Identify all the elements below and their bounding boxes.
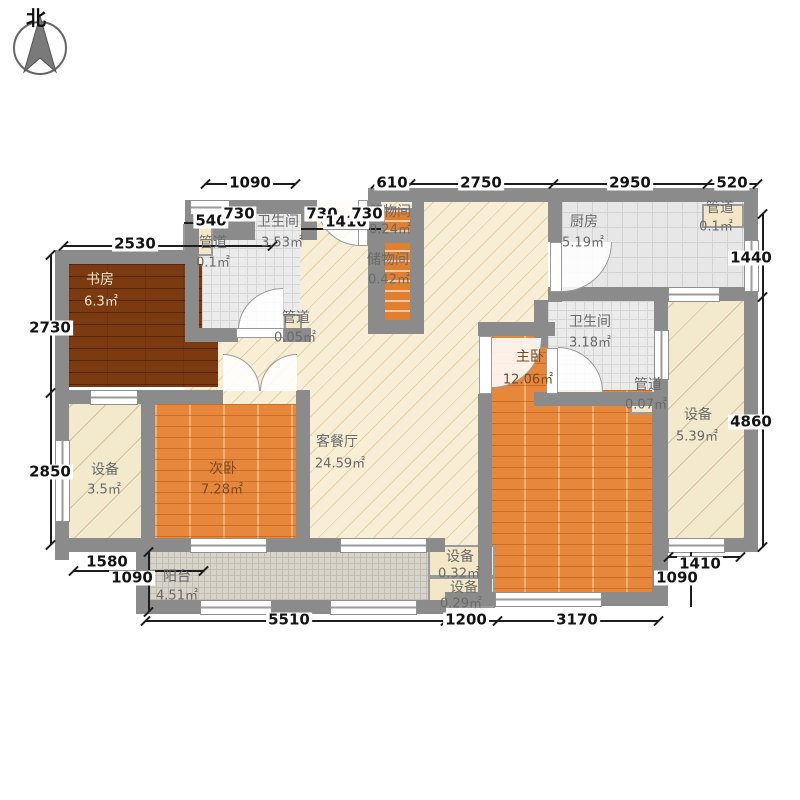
- balcony-name: 阳台: [163, 570, 191, 584]
- equip-bottom2-area: 0.29㎡: [440, 598, 482, 611]
- dim-bottom-5510: 5510: [266, 613, 312, 628]
- storage-lower-name: 储物间: [367, 253, 409, 267]
- equip-bottom1-area: 0.32㎡: [438, 568, 480, 581]
- dim-left-2850: 2850: [27, 465, 73, 480]
- north-label: 北: [26, 2, 46, 31]
- kitchen-area: 5.19㎡: [562, 237, 604, 250]
- dim-right-4860: 4860: [728, 415, 774, 430]
- dim-top-2750: 2750: [458, 176, 504, 191]
- dim-bottom-1200: 1200: [443, 613, 489, 628]
- equip-bottom2-name: 设备: [450, 581, 478, 595]
- dim-left-1580: 1580: [84, 555, 130, 570]
- window-master-bottom: [495, 592, 602, 607]
- equip-left-area: 3.5㎡: [87, 484, 121, 497]
- duct-top-left-area: 0.1㎡: [196, 257, 230, 270]
- living-name: 客餐厅: [316, 435, 358, 449]
- duct-top-right-area: 0.1㎡: [699, 221, 733, 234]
- dim-left-1090: 1090: [109, 571, 155, 586]
- wall-storage-right: [412, 202, 424, 330]
- dim-in-730c: 730: [349, 207, 384, 222]
- bath-top-area: 3.53㎡: [261, 237, 303, 250]
- equip-bottom1-name: 设备: [446, 550, 474, 564]
- duct-top-left-name: 管道: [199, 236, 227, 250]
- dim-left-2530: 2530: [112, 237, 158, 252]
- wall-bed2-left: [141, 404, 155, 552]
- study-name: 书房: [86, 273, 114, 287]
- duct-right-name: 管道: [634, 378, 662, 392]
- study-area: 6.3㎡: [84, 296, 118, 309]
- dim-left-2730: 2730: [27, 321, 73, 336]
- bed2-area: 7.28㎡: [201, 484, 243, 497]
- duct-top-right-name: 管道: [706, 201, 734, 215]
- dim-top-610: 610: [374, 176, 409, 191]
- floor-plan-canvas: 北: [0, 0, 800, 800]
- bath-top-name: 卫生间: [257, 215, 299, 229]
- dim-top-2950: 2950: [607, 176, 653, 191]
- equip-right-name: 设备: [684, 408, 712, 422]
- wall-hall-bottom-a: [55, 390, 223, 404]
- bath-right-area: 3.18㎡: [569, 337, 611, 350]
- window-equip-left: [55, 440, 70, 522]
- equip-left-name: 设备: [91, 463, 119, 477]
- dim-right-1090: 1090: [654, 571, 700, 586]
- wall-kitchen-left-a: [548, 202, 562, 242]
- window-balcony-top-a: [190, 538, 267, 553]
- dim-right-1440: 1440: [728, 251, 774, 266]
- window-balcony-bottom-a: [200, 600, 272, 615]
- window-bathR-right: [654, 330, 669, 380]
- dim-bottom-3170: 3170: [554, 613, 600, 628]
- dim-top-1090: 1090: [227, 176, 273, 191]
- kitchen-name: 厨房: [570, 215, 598, 229]
- window-balcony-bottom-b: [330, 600, 417, 615]
- window-hall-wall: [90, 390, 138, 405]
- dim-in-730a: 730: [221, 207, 256, 222]
- wall-storage-bottom: [368, 322, 424, 334]
- storage-lower-area: 0.42㎡: [368, 274, 410, 287]
- window-balcony-top-b: [340, 538, 427, 553]
- duct-hall-name: 管道: [282, 311, 310, 325]
- equip-right-area: 5.39㎡: [676, 431, 718, 444]
- master-name: 主卧: [516, 350, 544, 364]
- window-equipR-bottom: [668, 538, 725, 553]
- master-area: 12.06㎡: [503, 374, 553, 387]
- master-door-leaf: [479, 336, 492, 394]
- dim-line-2530: [63, 245, 272, 247]
- wall-master-left-b: [478, 394, 492, 592]
- storage-upper-area: 0.24㎡: [369, 224, 411, 237]
- wall-bathroom-top-left: [185, 214, 199, 340]
- dim-line-left: [50, 255, 52, 545]
- living-area: 24.59㎡: [315, 458, 365, 471]
- bath-right-name: 卫生间: [569, 315, 611, 329]
- dim-top-520: 520: [714, 176, 749, 191]
- duct-hall-area: 0.05㎡: [274, 332, 316, 345]
- dim-line-top-b: [375, 183, 757, 185]
- wall-bathroom-top-bottom-a: [185, 328, 238, 342]
- wall-bed2-right: [296, 390, 310, 552]
- wall-kitchen-bottom: [548, 287, 758, 301]
- wall-master-right: [652, 406, 668, 592]
- master-bedroom-floor: [490, 390, 652, 592]
- balcony-area: 4.51㎡: [156, 590, 198, 603]
- bed2-name: 次卧: [209, 462, 237, 476]
- duct-right-area: 0.07㎡: [625, 399, 667, 412]
- window-kitchen-bottom: [668, 287, 720, 302]
- kitchen-door-leaf: [550, 242, 562, 292]
